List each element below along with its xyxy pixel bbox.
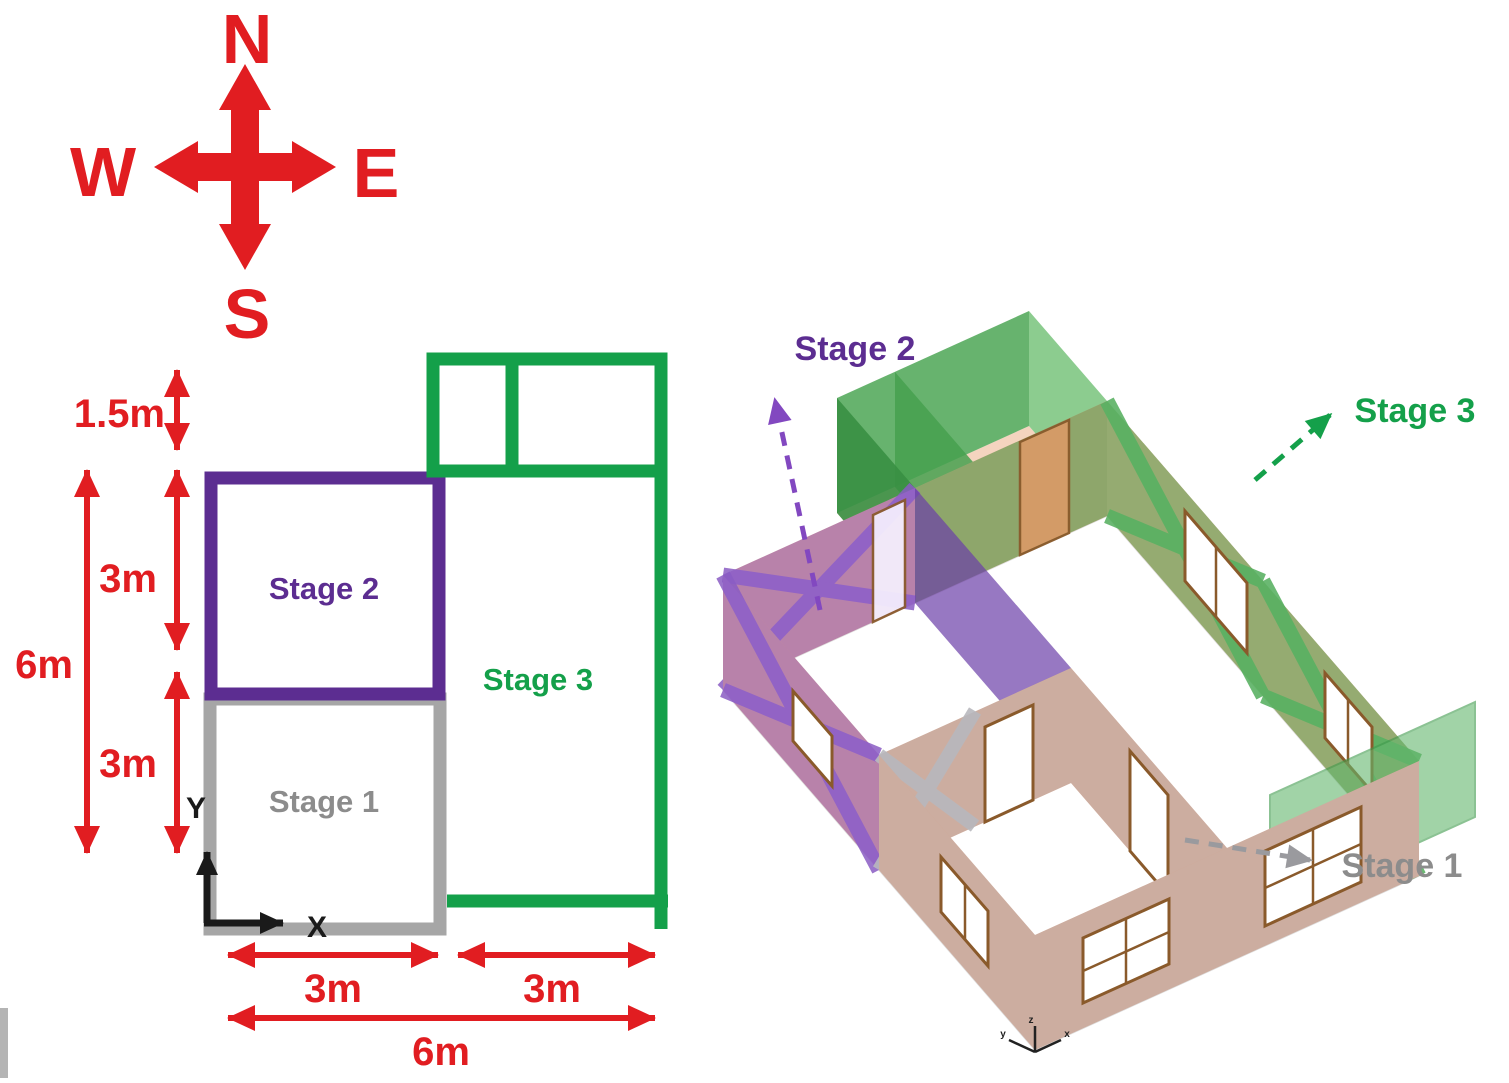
compass-west-arrowhead [154,141,198,193]
dim-label-3m-lower: 3m [99,742,157,786]
compass-label-east: E [353,134,400,212]
dim-label-6m-bottom: 6m [412,1030,470,1074]
plan-y-axis-label: Y [186,792,206,825]
dim-label-3m-bottom-left: 3m [304,967,362,1011]
house-3d-model: z y x Stage 2 Stage 3 Stage 1 [680,300,1509,1083]
triad-x-label: x [1064,1029,1070,1040]
stage3-callout-arrow [1255,415,1330,480]
plan-stage2-label: Stage 2 [269,571,379,606]
plan-stage3-label: Stage 3 [483,662,593,697]
triad-y-label: y [1000,1029,1006,1040]
compass-horizontal-bar [192,153,298,181]
triad-z-label: z [1029,1015,1034,1026]
plan-stage3-north-annex [433,359,661,471]
stage3-door [1020,420,1069,555]
compass-label-north: N [222,0,273,78]
dim-label-6m-left: 6m [15,643,73,687]
compass-east-arrowhead [292,141,336,193]
dim-label-3m-bottom-right: 3m [523,967,581,1011]
dim-label-3m-upper: 3m [99,557,157,601]
compass-label-west: W [70,133,136,211]
compass-label-south: S [224,275,271,353]
model-stage2-label: Stage 2 [795,330,916,368]
model-stage1-label: Stage 1 [1342,847,1463,885]
compass-south-arrowhead [219,224,271,270]
stage2-door-opening [873,500,905,622]
plan-stage1-label: Stage 1 [269,784,379,819]
plan-stage3-outline [433,353,668,929]
figure-construction-stages: { "compass": { "north": "N", "south": "S… [0,0,1509,1083]
model-stage3-label: Stage 3 [1355,392,1476,430]
stage1-partition-door [985,705,1033,822]
plan-x-axis-label: X [307,911,327,944]
page-edge-artifact [0,1008,8,1078]
dim-label-1.5m: 1.5m [74,392,165,436]
compass-rose-icon [154,64,336,270]
